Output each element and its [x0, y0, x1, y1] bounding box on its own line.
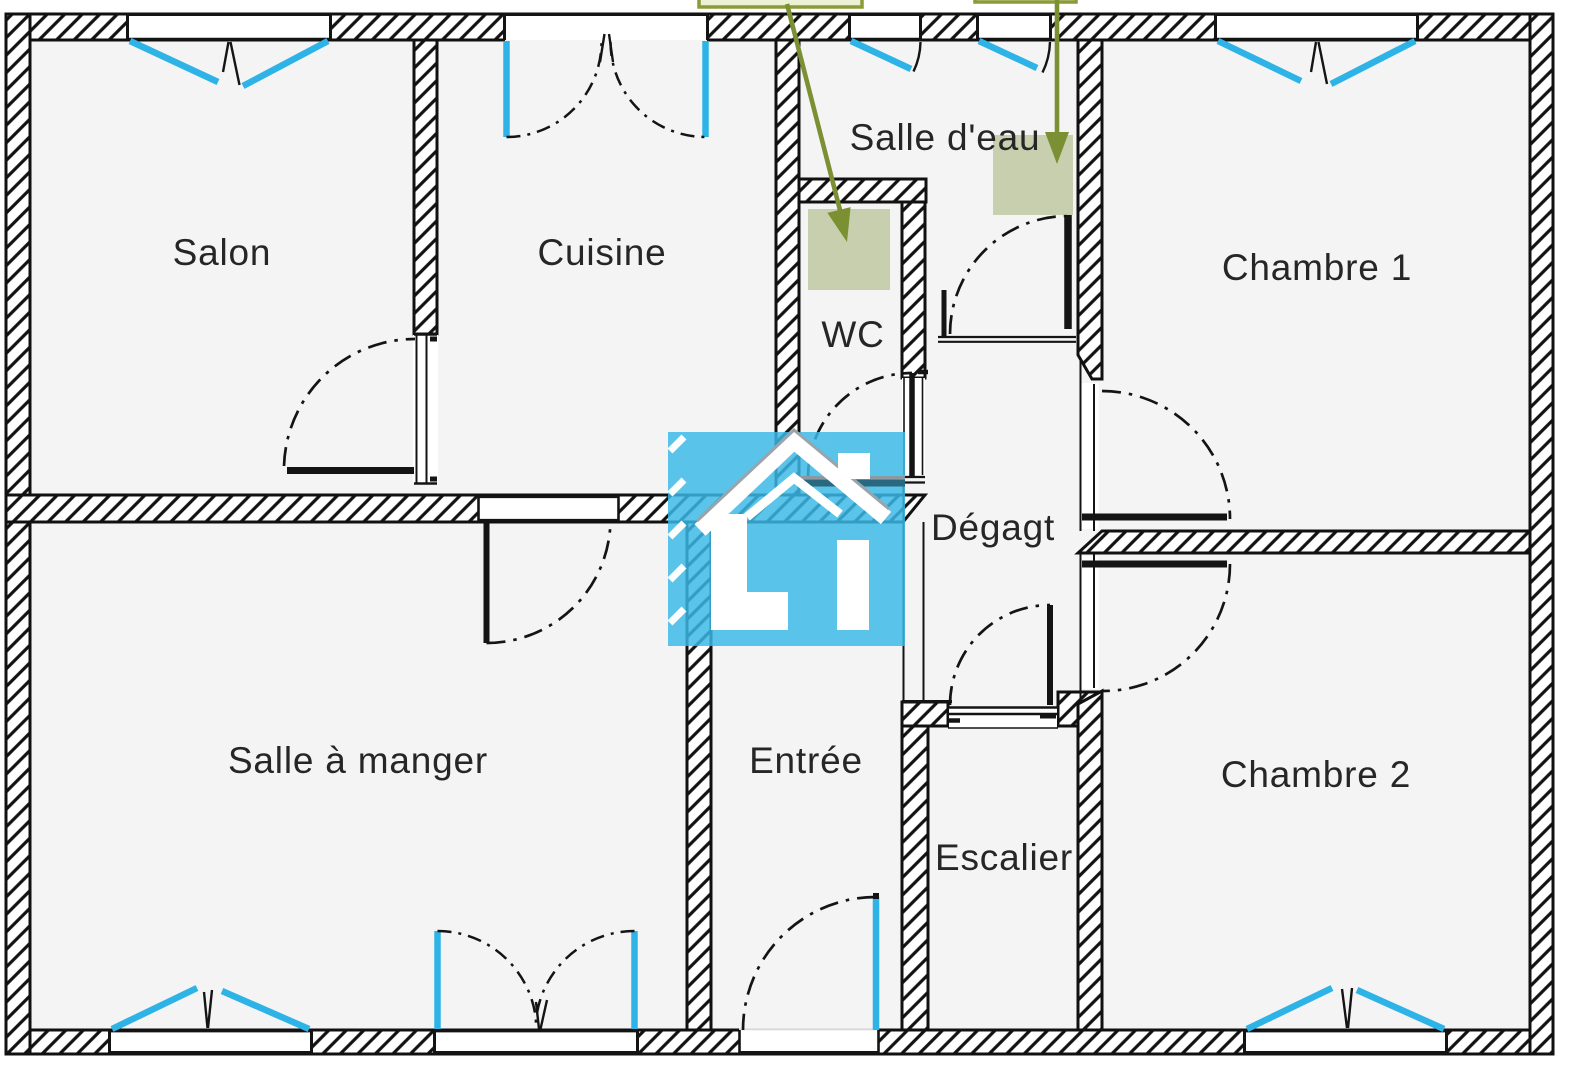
svg-text:Chambre 1: Chambre 1	[1222, 247, 1412, 288]
svg-text:Dégagt: Dégagt	[931, 507, 1055, 548]
svg-text:Escalier: Escalier	[935, 837, 1073, 878]
svg-text:Salle à manger: Salle à manger	[228, 740, 488, 781]
svg-text:Cuisine: Cuisine	[538, 232, 667, 273]
svg-text:Chambre 2: Chambre 2	[1221, 754, 1411, 795]
svg-text:Salon: Salon	[173, 232, 272, 273]
svg-text:Salle d'eau: Salle d'eau	[850, 117, 1041, 158]
svg-text:WC: WC	[821, 314, 884, 355]
svg-text:Entrée: Entrée	[749, 740, 863, 781]
